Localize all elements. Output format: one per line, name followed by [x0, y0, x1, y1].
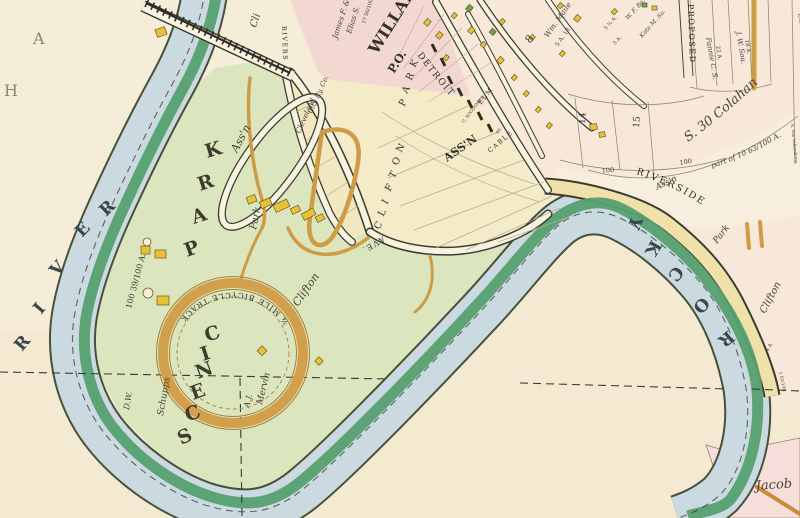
map-canvas: R I V E R R O C K Y S C E N I C P A R K … [0, 0, 800, 518]
building [599, 132, 606, 138]
atlas-map: R I V E R R O C K Y S C E N I C P A R K … [0, 0, 800, 518]
rivers-street-label: RIVERS [280, 26, 289, 62]
building [590, 123, 598, 130]
building [157, 296, 169, 305]
lot-14: 14 [578, 112, 588, 124]
corner-letter-h: H [4, 81, 18, 100]
corner-letter-a: A [32, 29, 45, 48]
pavilion-circle [143, 238, 151, 246]
lot-15: 15 [632, 116, 643, 129]
building [155, 250, 166, 258]
building [652, 6, 657, 10]
frontage-100: 100 [601, 166, 614, 175]
pavilion-circle [143, 288, 153, 298]
owner-jacob: Jacob [752, 476, 792, 494]
building [141, 246, 150, 254]
